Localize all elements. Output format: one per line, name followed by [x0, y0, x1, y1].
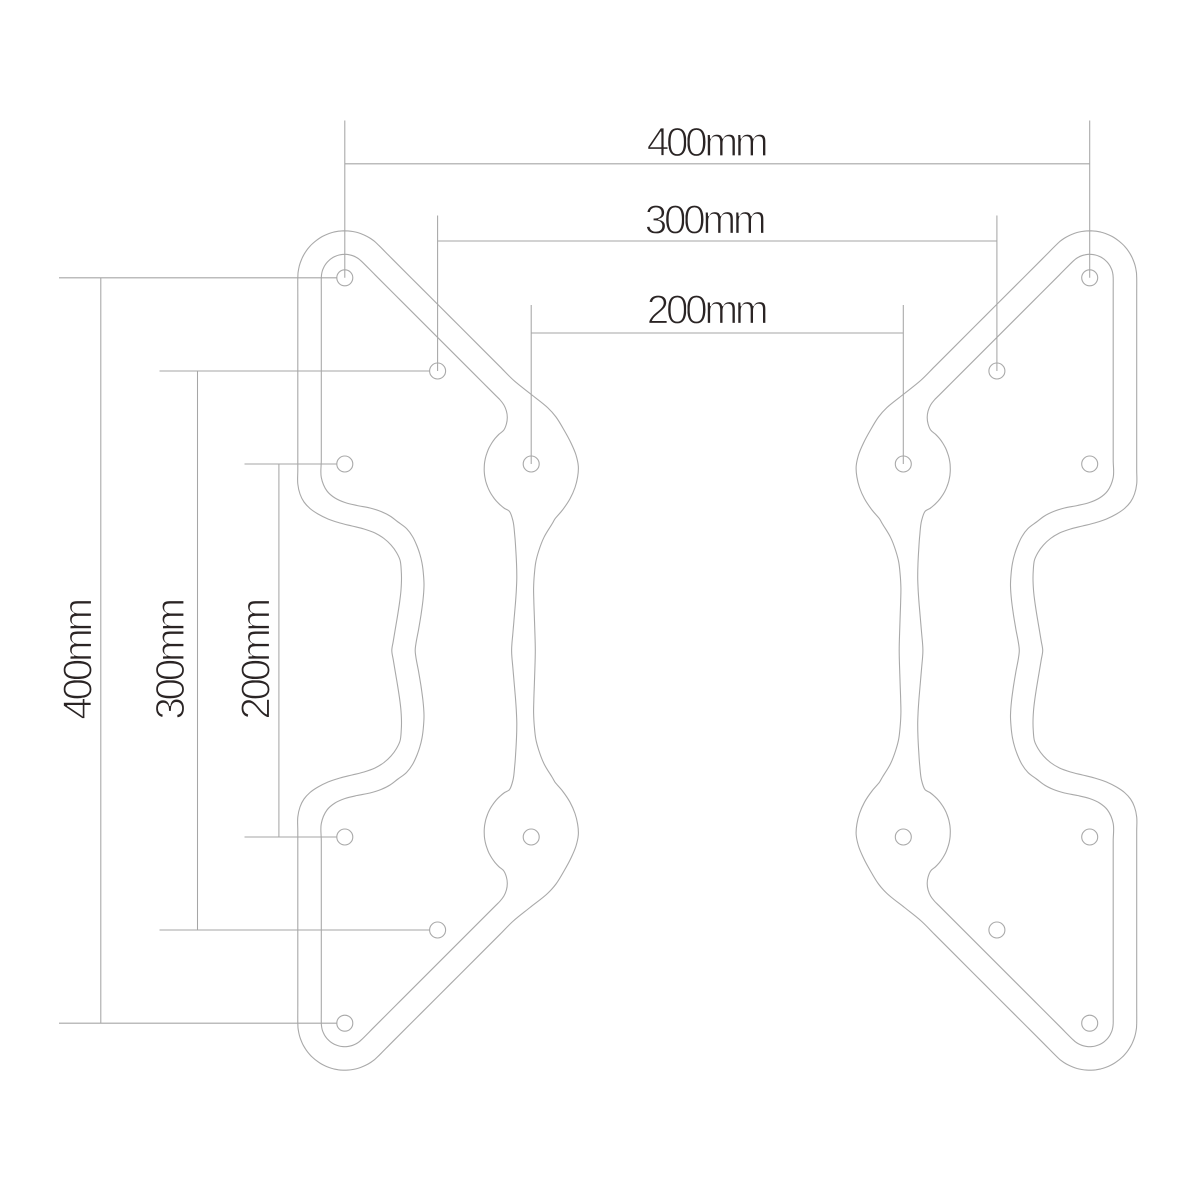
svg-text:200mm: 200mm	[232, 600, 278, 720]
svg-text:300mm: 300mm	[147, 600, 193, 720]
svg-text:300mm: 300mm	[645, 197, 765, 243]
svg-text:200mm: 200mm	[647, 287, 767, 333]
svg-text:400mm: 400mm	[55, 600, 101, 720]
svg-text:400mm: 400mm	[647, 119, 767, 165]
